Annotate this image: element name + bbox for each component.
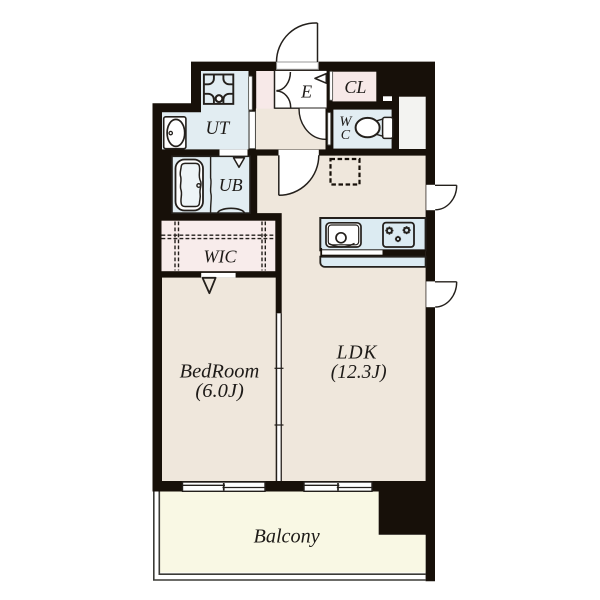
- svg-text:WIC: WIC: [204, 247, 238, 267]
- svg-text:E: E: [300, 82, 312, 102]
- svg-text:UT: UT: [205, 119, 230, 139]
- svg-text:(6.0J): (6.0J): [195, 380, 244, 402]
- svg-text:Balcony: Balcony: [254, 525, 320, 547]
- svg-text:C: C: [341, 128, 351, 143]
- svg-text:LDK: LDK: [336, 342, 378, 363]
- svg-text:(12.3J): (12.3J): [331, 362, 387, 383]
- svg-text:CL: CL: [344, 77, 366, 97]
- svg-text:UB: UB: [219, 175, 243, 195]
